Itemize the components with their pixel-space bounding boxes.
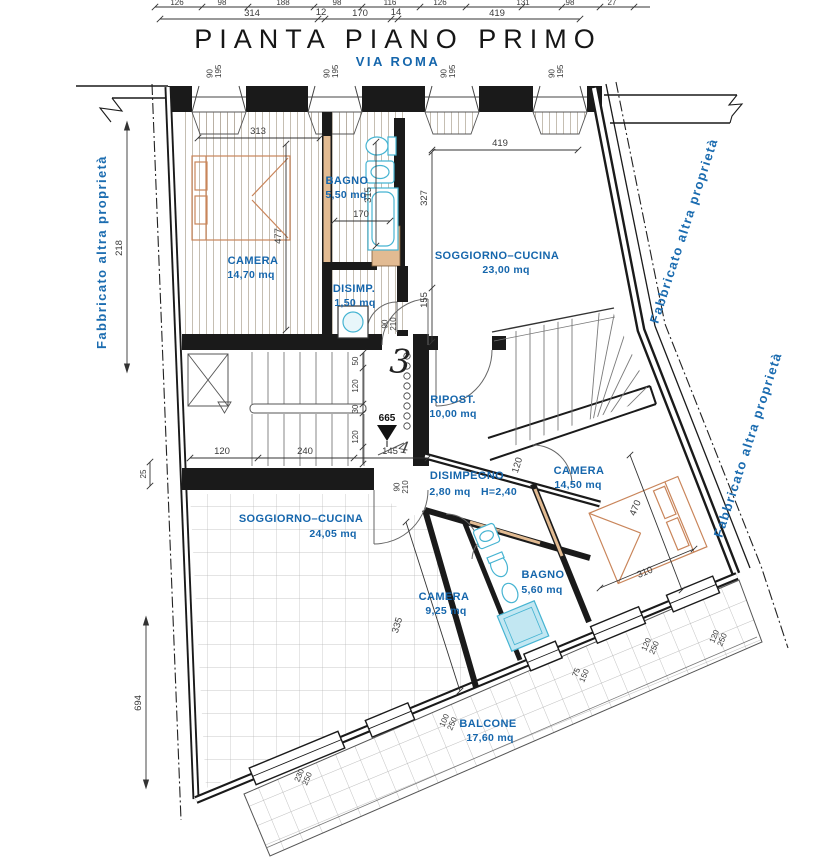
svg-text:170: 170 bbox=[353, 209, 369, 220]
svg-text:327: 327 bbox=[419, 190, 430, 206]
room-soggiorno-ne: SOGGIORNO–CUCINA bbox=[435, 250, 559, 262]
svg-text:1,50 mq: 1,50 mq bbox=[334, 297, 375, 309]
svg-text:120: 120 bbox=[214, 446, 230, 457]
svg-text:210: 210 bbox=[389, 317, 398, 331]
room-soggiorno-sw: SOGGIORNO–CUCINA bbox=[239, 513, 363, 525]
window-90x195 bbox=[192, 84, 246, 134]
svg-text:5,60 mq: 5,60 mq bbox=[521, 584, 562, 596]
toilet-icon bbox=[366, 137, 396, 155]
svg-text:25: 25 bbox=[139, 469, 148, 478]
svg-text:170: 170 bbox=[352, 8, 368, 19]
staircase-winder bbox=[492, 300, 658, 460]
svg-text:665: 665 bbox=[379, 413, 396, 424]
room-bagno-s: BAGNO bbox=[522, 569, 565, 581]
neighbor-building-top-left bbox=[76, 86, 168, 122]
floor-plan-page: PIANTA PIANO PRIMO VIA ROMA Fabbricato a… bbox=[0, 0, 838, 864]
room-ripostiglio: RIPOST. bbox=[430, 394, 476, 406]
page-title: PIANTA PIANO PRIMO bbox=[194, 24, 602, 54]
svg-text:195: 195 bbox=[448, 64, 457, 78]
svg-text:98: 98 bbox=[566, 0, 575, 7]
svg-text:419: 419 bbox=[492, 138, 508, 149]
svg-text:126: 126 bbox=[433, 0, 447, 7]
svg-text:2,80 mq: 2,80 mq bbox=[429, 486, 470, 498]
svg-text:4: 4 bbox=[396, 437, 410, 458]
svg-text:470: 470 bbox=[628, 499, 644, 518]
svg-text:210: 210 bbox=[401, 480, 410, 494]
svg-text:218: 218 bbox=[114, 240, 125, 256]
svg-text:120: 120 bbox=[351, 430, 360, 444]
room-camera-s: CAMERA bbox=[419, 591, 470, 603]
svg-text:116: 116 bbox=[384, 0, 397, 7]
svg-text:188: 188 bbox=[276, 0, 290, 7]
bidet-icon bbox=[499, 581, 521, 605]
svg-text:12: 12 bbox=[316, 7, 327, 18]
street-label: VIA ROMA bbox=[356, 54, 441, 69]
svg-text:120: 120 bbox=[510, 456, 525, 474]
window-90x195 bbox=[425, 84, 479, 134]
svg-text:30: 30 bbox=[351, 404, 360, 413]
svg-text:126: 126 bbox=[170, 0, 184, 7]
floor-plan-svg: PIANTA PIANO PRIMO VIA ROMA Fabbricato a… bbox=[0, 0, 838, 864]
svg-text:477: 477 bbox=[273, 228, 284, 244]
svg-text:27: 27 bbox=[608, 0, 617, 7]
svg-text:120: 120 bbox=[351, 379, 360, 393]
neighbor-label-upper-right: Fabbricato altra proprietà bbox=[647, 136, 721, 325]
svg-text:98: 98 bbox=[333, 0, 342, 7]
svg-text:98: 98 bbox=[218, 0, 227, 7]
svg-text:155: 155 bbox=[419, 292, 430, 308]
room-disimpegno: DISIMPEGNO bbox=[430, 470, 504, 482]
svg-text:313: 313 bbox=[250, 126, 266, 137]
svg-text:H=2,40: H=2,40 bbox=[481, 486, 517, 498]
room-bagno-n: BAGNO bbox=[326, 175, 369, 187]
svg-text:9,25 mq: 9,25 mq bbox=[425, 605, 466, 617]
window-90x195 bbox=[308, 84, 362, 134]
svg-text:14: 14 bbox=[391, 7, 402, 18]
room-camera-se: CAMERA bbox=[554, 465, 605, 477]
window-90x195 bbox=[533, 84, 587, 134]
washing-machine-icon bbox=[338, 306, 368, 338]
svg-text:17,60 mq: 17,60 mq bbox=[466, 732, 513, 744]
room-camera-nw: CAMERA bbox=[228, 255, 279, 267]
elevation-marker: 665 bbox=[377, 413, 397, 447]
room-balcone: BALCONE bbox=[459, 718, 516, 730]
svg-text:195: 195 bbox=[331, 64, 340, 78]
shower-tray-icon bbox=[497, 601, 548, 651]
svg-text:195: 195 bbox=[214, 64, 223, 78]
neighbor-label-lower-right: Fabbricato altra proprietà bbox=[711, 350, 785, 539]
svg-text:14,50 mq: 14,50 mq bbox=[554, 479, 601, 491]
svg-text:694: 694 bbox=[133, 695, 144, 711]
svg-text:314: 314 bbox=[244, 8, 260, 19]
svg-text:131: 131 bbox=[516, 0, 530, 7]
unit-number-handwritten: 3 bbox=[388, 341, 412, 381]
svg-text:419: 419 bbox=[489, 8, 505, 19]
svg-text:50: 50 bbox=[351, 356, 360, 365]
toilet-icon bbox=[487, 552, 511, 579]
svg-text:14,70 mq: 14,70 mq bbox=[227, 269, 274, 281]
neighbor-label-left: Fabbricato altra proprietà bbox=[94, 155, 109, 349]
bidet-icon bbox=[366, 161, 394, 183]
svg-text:195: 195 bbox=[556, 64, 565, 78]
svg-text:10,00 mq: 10,00 mq bbox=[429, 408, 476, 420]
svg-text:5,50 mq: 5,50 mq bbox=[325, 189, 366, 201]
svg-text:240: 240 bbox=[297, 446, 313, 457]
svg-text:315: 315 bbox=[363, 187, 374, 203]
room-disimp-n: DISIMP. bbox=[333, 283, 375, 295]
svg-text:24,05 mq: 24,05 mq bbox=[309, 528, 356, 540]
svg-text:23,00 mq: 23,00 mq bbox=[482, 264, 529, 276]
